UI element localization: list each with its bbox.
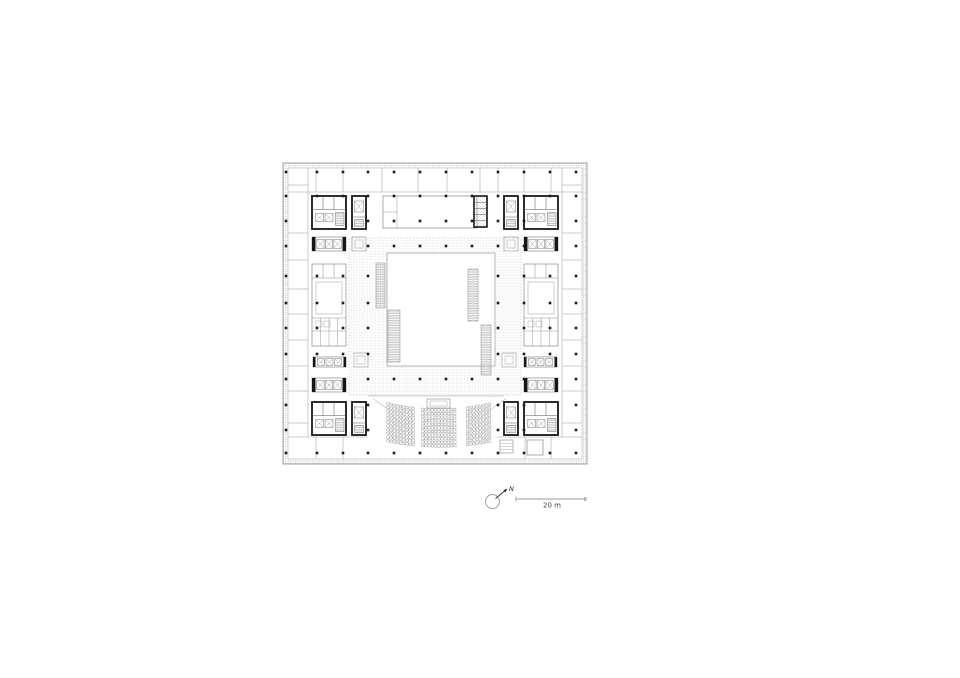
auditorium-seat: [425, 430, 428, 433]
auditorium-seat: [402, 420, 405, 423]
elevator-cab: [537, 420, 545, 428]
auditorium-seat: [472, 413, 475, 416]
auditorium-seat: [399, 405, 402, 408]
auditorium-seat: [485, 433, 488, 436]
scale-bar-end-block: [584, 497, 587, 501]
column-dot: [419, 195, 422, 198]
stair-flight: [548, 419, 557, 432]
stair-flight: [336, 419, 345, 432]
column-dot: [285, 171, 288, 174]
column-dot: [316, 302, 319, 305]
column-dot: [285, 220, 288, 223]
auditorium-seat: [390, 407, 393, 410]
elevator-bank-cap: [312, 378, 316, 392]
auditorium-seat: [453, 408, 456, 411]
auditorium-seat: [434, 430, 437, 433]
auditorium-seat: [425, 444, 428, 447]
column-dot: [285, 327, 288, 330]
auditorium-seat: [441, 412, 444, 415]
auditorium-seat: [387, 428, 390, 431]
auditorium-seat: [450, 423, 453, 426]
auditorium-seat: [399, 423, 402, 426]
auditorium-seat: [421, 430, 424, 433]
plan-root: N20 m: [283, 163, 587, 510]
auditorium-seat: [453, 415, 456, 418]
column-dot: [285, 378, 288, 381]
auditorium-seat: [482, 419, 485, 422]
auditorium-seat: [437, 412, 440, 415]
auditorium-seat: [434, 438, 437, 441]
column-dot: [393, 378, 396, 381]
column-dot: [419, 245, 422, 248]
auditorium-seat: [428, 437, 431, 440]
auditorium-seat: [450, 412, 453, 415]
auditorium-seat: [469, 414, 472, 417]
column-dot: [367, 378, 370, 381]
auditorium-seat: [453, 430, 456, 433]
auditorium-seat: [444, 423, 447, 426]
auditorium-seat: [469, 432, 472, 435]
auditorium-seat: [453, 433, 456, 436]
column-dot: [316, 353, 319, 356]
auditorium-seat: [421, 419, 424, 422]
elevator-cab: [546, 240, 554, 249]
auditorium-seat: [390, 418, 393, 421]
elevator-cab: [355, 201, 364, 212]
auditorium-seat: [482, 411, 485, 414]
column-dot: [497, 452, 500, 455]
column-dot: [523, 171, 526, 174]
auditorium-seat: [425, 426, 428, 429]
auditorium-seat: [421, 412, 424, 415]
auditorium-seat: [387, 421, 390, 424]
column-dot: [575, 404, 578, 407]
column-dot: [497, 404, 500, 407]
column-dot: [445, 220, 448, 223]
column-dot: [393, 171, 396, 174]
auditorium-seat: [399, 434, 402, 437]
auditorium-seat: [422, 441, 425, 444]
auditorium-seat: [479, 430, 482, 433]
column-dot: [575, 378, 578, 381]
column-dot: [342, 327, 345, 330]
auditorium-seat: [450, 444, 453, 447]
auditorium-seat: [412, 411, 415, 414]
auditorium-seat: [485, 422, 488, 425]
auditorium-seat: [393, 433, 396, 436]
auditorium-seat: [450, 419, 453, 422]
auditorium-seat: [409, 428, 412, 431]
column-dot: [497, 245, 500, 248]
auditorium-seat: [390, 440, 393, 443]
auditorium-seat: [482, 408, 485, 411]
column-dot: [549, 327, 552, 330]
auditorium-seat: [447, 423, 450, 426]
auditorium-seat: [428, 423, 431, 426]
column-dot: [497, 378, 500, 381]
column-dot: [471, 171, 474, 174]
column-dot: [575, 327, 578, 330]
auditorium-seat: [479, 419, 482, 422]
core-block-small: [352, 402, 366, 435]
auditorium-seat: [434, 416, 437, 419]
auditorium-seat: [450, 408, 453, 411]
elevator-cab: [546, 381, 554, 390]
auditorium-seat: [425, 419, 428, 422]
auditorium-seat: [390, 429, 393, 432]
auditorium-seat: [488, 436, 491, 439]
auditorium-seat: [444, 430, 447, 433]
auditorium-seat: [476, 431, 479, 434]
auditorium-seat: [387, 439, 390, 442]
auditorium-seat: [447, 441, 450, 444]
auditorium-seat: [431, 427, 434, 430]
auditorium-seat: [488, 414, 491, 417]
auditorium-seat: [434, 434, 437, 437]
auditorium-seat: [431, 423, 434, 426]
auditorium-seat: [409, 418, 412, 421]
auditorium-seat: [469, 410, 472, 413]
elevator-cab: [325, 420, 333, 428]
auditorium-seat: [441, 416, 444, 419]
auditorium-seat: [479, 434, 482, 437]
auditorium-seat: [428, 426, 431, 429]
elevator-cab: [316, 214, 324, 222]
auditorium-seat: [473, 442, 476, 445]
column-dot: [523, 452, 526, 455]
column-dot: [471, 220, 474, 223]
auditorium-seat: [441, 430, 444, 433]
auditorium-seat: [469, 439, 472, 442]
auditorium-seat: [428, 408, 431, 411]
auditorium-seat: [485, 407, 488, 410]
elevator-bank-cap: [555, 357, 558, 367]
column-dot: [285, 195, 288, 198]
auditorium-seat: [425, 415, 428, 418]
auditorium-seat: [447, 419, 450, 422]
elevator-cab: [317, 240, 325, 249]
auditorium-seat: [387, 413, 390, 416]
column-dot: [367, 302, 370, 305]
auditorium-seat: [482, 415, 485, 418]
column-dot: [497, 195, 500, 198]
column-dot: [575, 302, 578, 305]
auditorium-seat: [476, 438, 479, 441]
auditorium-seat: [399, 427, 402, 430]
auditorium-seat: [412, 418, 415, 421]
auditorium-seat: [396, 437, 399, 440]
elevator-cab: [325, 214, 333, 222]
auditorium-seat: [406, 439, 409, 442]
auditorium-seat: [476, 409, 479, 412]
auditorium-seat: [421, 408, 424, 411]
auditorium-seat: [406, 435, 409, 438]
auditorium-seat: [485, 440, 488, 443]
column-dot: [342, 195, 345, 198]
auditorium-seat: [402, 413, 405, 416]
auditorium-seat: [447, 416, 450, 419]
auditorium-seat: [479, 412, 482, 415]
auditorium-seat: [482, 433, 485, 436]
elevator-cab: [529, 240, 537, 249]
elevator-cab: [529, 381, 537, 390]
auditorium-seat: [482, 404, 485, 407]
auditorium-seat: [428, 412, 431, 415]
auditorium-seat: [399, 438, 402, 441]
auditorium-seat: [450, 430, 453, 433]
service-shaft-outline: [474, 196, 487, 227]
auditorium-seat: [402, 442, 405, 445]
auditorium-seat: [441, 438, 444, 441]
auditorium-seat: [434, 423, 437, 426]
auditorium-seat: [485, 403, 488, 406]
auditorium-seat: [393, 426, 396, 429]
auditorium-seat: [396, 441, 399, 444]
auditorium-seat: [434, 419, 437, 422]
auditorium-seat: [453, 419, 456, 422]
elevator-cab: [317, 381, 325, 390]
auditorium-seat: [466, 436, 469, 439]
column-dot: [549, 302, 552, 305]
auditorium-seat: [441, 420, 444, 423]
auditorium-seat: [488, 432, 491, 435]
auditorium-seat: [431, 441, 434, 444]
auditorium-seat: [479, 438, 482, 441]
auditorium-seat: [482, 437, 485, 440]
column-dot: [342, 452, 345, 455]
column-dot: [367, 195, 370, 198]
column-dot: [316, 327, 319, 330]
column-dot: [316, 275, 319, 278]
auditorium-seat: [425, 412, 428, 415]
auditorium-seat: [466, 421, 469, 424]
elevator-cab: [537, 359, 544, 366]
auditorium-seat: [412, 440, 415, 443]
scale-bar: 20 m: [516, 497, 587, 510]
auditorium-seat: [469, 435, 472, 438]
auditorium-seat: [409, 443, 412, 446]
elevator-cab: [528, 420, 536, 428]
column-dot: [316, 195, 319, 198]
auditorium-seat: [479, 427, 482, 430]
auditorium-seat: [431, 416, 434, 419]
auditorium-seat: [402, 431, 405, 434]
elevator-bank-cap: [555, 378, 559, 392]
auditorium-seat: [431, 419, 434, 422]
scale-label: 20 m: [543, 502, 561, 510]
auditorium-seat: [396, 419, 399, 422]
elevator-bank-cap: [343, 237, 347, 251]
auditorium-seat: [393, 415, 396, 418]
column-dot: [497, 302, 500, 305]
auditorium-seat: [390, 422, 393, 425]
core-block: [524, 196, 558, 229]
auditorium-seat: [434, 409, 437, 412]
auditorium-seat: [428, 419, 431, 422]
auditorium-seat: [396, 408, 399, 411]
auditorium-seat: [399, 416, 402, 419]
escalator: [376, 263, 385, 308]
column-dot: [523, 245, 526, 248]
auditorium-seat: [412, 422, 415, 425]
column-dot: [342, 275, 345, 278]
auditorium-seat: [425, 408, 428, 411]
core-block: [312, 196, 346, 229]
auditorium-seat: [399, 412, 402, 415]
column-dot: [285, 275, 288, 278]
auditorium-seat: [447, 434, 450, 437]
auditorium-seat: [488, 429, 491, 432]
stair-flight: [355, 220, 364, 227]
column-dot: [523, 353, 526, 356]
auditorium-seat: [412, 407, 415, 410]
stair-flight: [355, 426, 364, 433]
atrium-void: [387, 253, 495, 366]
elevator-cab: [325, 240, 333, 249]
auditorium-seat: [476, 427, 479, 430]
auditorium-seat: [444, 409, 447, 412]
floor-plan-page: N20 m: [0, 0, 960, 678]
auditorium-seat: [444, 441, 447, 444]
elevator-cab: [507, 201, 516, 212]
auditorium-seat: [421, 433, 424, 436]
auditorium-seat: [406, 443, 409, 446]
auditorium-seat: [434, 441, 437, 444]
auditorium-seat: [421, 415, 424, 418]
auditorium-seat: [485, 414, 488, 417]
auditorium-seat: [386, 402, 389, 405]
auditorium-seat: [475, 405, 478, 408]
auditorium-seat: [402, 435, 405, 438]
column-dot: [393, 195, 396, 198]
auditorium-seat: [390, 425, 393, 428]
column-dot: [367, 404, 370, 407]
elevator-cab: [317, 359, 324, 366]
auditorium-seat: [454, 444, 457, 447]
auditorium-seat: [405, 417, 408, 420]
auditorium-seat: [438, 434, 441, 437]
elevator-bank: [524, 378, 558, 392]
column-dot: [497, 275, 500, 278]
column-dot: [471, 452, 474, 455]
column-dot: [419, 452, 422, 455]
auditorium-seat: [472, 406, 475, 409]
column-dot: [471, 378, 474, 381]
column-dot: [285, 452, 288, 455]
elevator-cab: [334, 240, 342, 249]
auditorium-seat: [393, 441, 396, 444]
core-block-small: [352, 196, 366, 229]
auditorium-seat: [469, 425, 472, 428]
auditorium-seat: [402, 438, 405, 441]
auditorium-seat: [466, 410, 469, 413]
auditorium-seat: [434, 427, 437, 430]
elevator-bank: [312, 237, 346, 251]
column-dot: [523, 220, 526, 223]
auditorium-seat: [479, 405, 482, 408]
column-dot: [549, 452, 552, 455]
column-dot: [471, 245, 474, 248]
auditorium-seat: [441, 434, 444, 437]
elevator-cab: [546, 359, 553, 366]
auditorium-seat: [399, 420, 402, 423]
auditorium-seat: [393, 404, 396, 407]
auditorium-seat: [472, 417, 475, 420]
auditorium-seat: [444, 445, 447, 448]
auditorium-seat: [450, 416, 453, 419]
auditorium-seat: [450, 426, 453, 429]
auditorium-seat: [437, 409, 440, 412]
escalator: [468, 269, 478, 321]
column-dot: [393, 220, 396, 223]
auditorium-seat: [453, 423, 456, 426]
auditorium-seat: [469, 443, 472, 446]
service-shaft: [474, 196, 487, 227]
auditorium-seat: [396, 434, 399, 437]
column-dot: [523, 378, 526, 381]
elevator-bank: [312, 378, 346, 392]
auditorium-seat: [485, 437, 488, 440]
auditorium-seat: [466, 414, 469, 417]
auditorium-seat: [479, 408, 482, 411]
auditorium-seat: [405, 410, 408, 413]
auditorium-seat: [447, 437, 450, 440]
auditorium-seat: [485, 418, 488, 421]
column-dot: [445, 378, 448, 381]
elevator-cab: [335, 359, 342, 366]
auditorium-seat: [472, 431, 475, 434]
auditorium-seat: [405, 421, 408, 424]
auditorium-seat: [472, 420, 475, 423]
auditorium-seat: [466, 407, 469, 410]
auditorium-seat: [396, 412, 399, 415]
column-dot: [367, 220, 370, 223]
auditorium-seat: [472, 424, 475, 427]
column-dot: [419, 171, 422, 174]
column-dot: [393, 245, 396, 248]
auditorium-seat: [393, 407, 396, 410]
auditorium-seat: [434, 445, 437, 448]
column-dot: [575, 452, 578, 455]
auditorium-seat: [444, 412, 447, 415]
elevator-bank-cap: [343, 378, 347, 392]
auditorium-seat: [453, 426, 456, 429]
elevator-bank: [524, 357, 557, 367]
auditorium-seat: [466, 425, 469, 428]
elevator-cab: [334, 381, 342, 390]
auditorium-seat: [405, 413, 408, 416]
floor-plan-drawing: N20 m: [0, 0, 960, 678]
column-dot: [285, 302, 288, 305]
elevator-bank-cap: [344, 357, 347, 367]
auditorium-seat: [447, 409, 450, 412]
auditorium-seat: [386, 406, 389, 409]
auditorium-seat: [444, 434, 447, 437]
column-dot: [367, 452, 370, 455]
elevator-cab: [528, 359, 535, 366]
elevator-bank-cap: [524, 357, 527, 367]
column-dot: [549, 171, 552, 174]
auditorium-seat: [393, 422, 396, 425]
core-block: [312, 402, 346, 435]
elevator-cab: [325, 381, 333, 390]
elevator-cab: [355, 407, 364, 418]
elevator-bank-cap: [555, 237, 559, 251]
auditorium-seat: [472, 410, 475, 413]
auditorium-seat: [425, 441, 428, 444]
auditorium-seat: [428, 434, 431, 437]
auditorium-seat: [412, 414, 415, 417]
